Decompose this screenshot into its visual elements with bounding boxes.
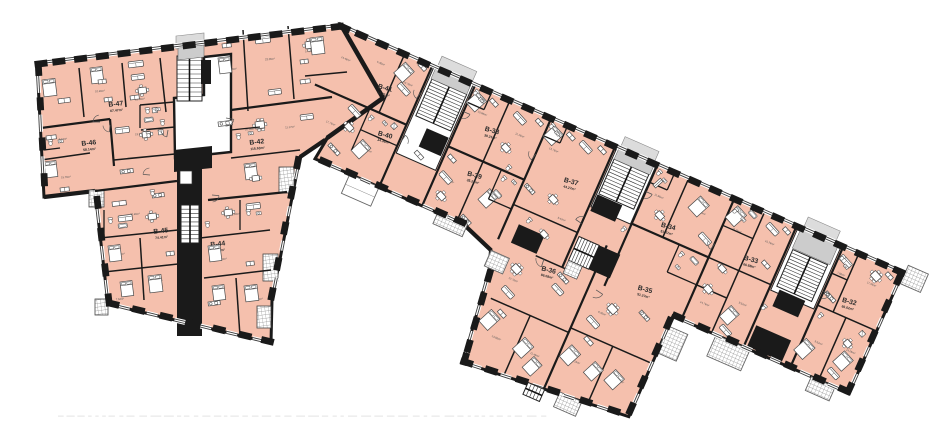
- svg-text:7.52m²: 7.52m²: [116, 297, 125, 302]
